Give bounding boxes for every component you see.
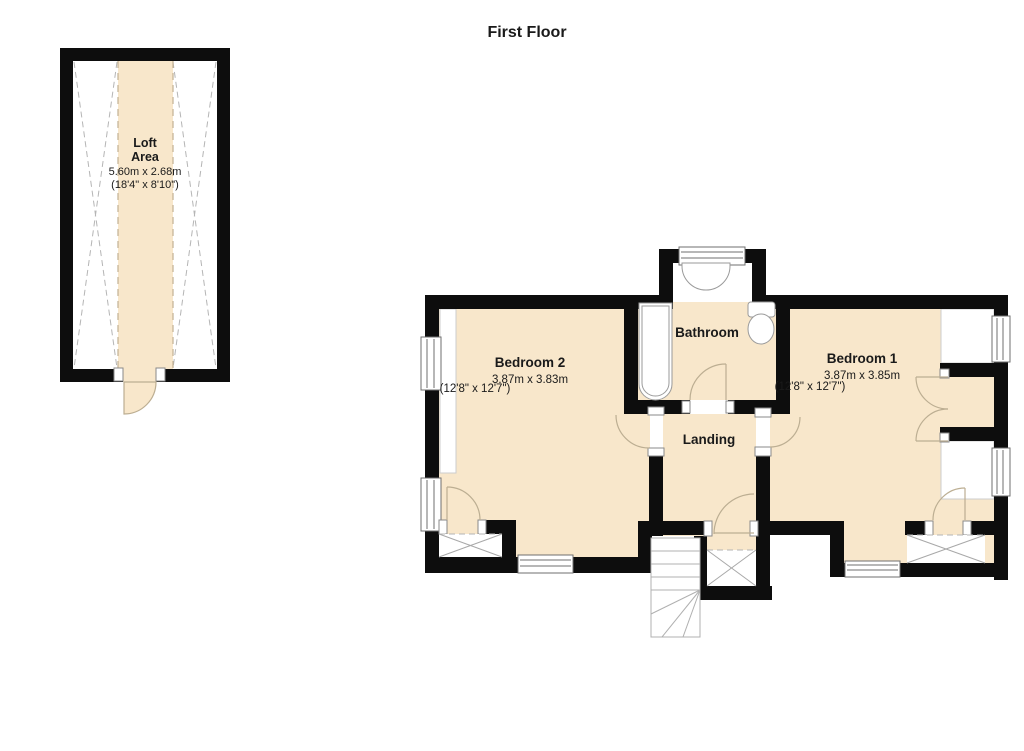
window <box>845 561 900 577</box>
loft-door <box>114 368 165 414</box>
window <box>421 337 441 390</box>
bathtub <box>639 303 672 400</box>
loft-dims-imperial: (18'4" x 8'10") <box>111 179 179 191</box>
eaves-storage-left <box>439 534 502 557</box>
door-arc <box>124 382 156 414</box>
bedroom1-recess-bottom <box>941 441 994 499</box>
window <box>679 247 745 265</box>
bedroom1-name: Bedroom 1 <box>827 351 898 366</box>
closet-floor <box>948 377 994 427</box>
loft-plan: Loft Area 5.60m x 2.68m (18'4" x 8'10") <box>60 48 230 414</box>
eaves-storage-right <box>907 535 985 563</box>
window <box>992 448 1010 496</box>
window <box>518 555 573 573</box>
bedroom2-dims-imperial: (12'8" x 12'7") <box>440 383 511 395</box>
page-title: First Floor <box>487 24 566 41</box>
floor-plan-svg: Loft Area 5.60m x 2.68m (18'4" x 8'10") <box>0 0 1024 751</box>
loft-name-line2: Area <box>131 150 160 164</box>
toilet <box>748 302 775 344</box>
bedroom2-floor <box>439 309 650 557</box>
bedroom1-dims-imperial: (12'8" x 12'7") <box>775 381 846 393</box>
window <box>992 316 1010 362</box>
staircase <box>651 538 700 637</box>
bedroom2-name: Bedroom 2 <box>495 355 566 370</box>
loft-dims-metric: 5.60m x 2.68m <box>109 166 182 178</box>
landing-name: Landing <box>683 432 736 447</box>
stairwell-floor <box>707 536 756 550</box>
bedroom1-recess-top <box>941 309 994 363</box>
loft-walkway-strip <box>118 61 173 369</box>
window <box>421 478 441 531</box>
bathroom-name: Bathroom <box>675 325 739 340</box>
main-plan: Bedroom 2 3.87m x 3.83m (12'8" x 12'7") … <box>421 247 1010 637</box>
loft-name-line1: Loft <box>133 136 157 150</box>
stair-void <box>707 550 756 586</box>
